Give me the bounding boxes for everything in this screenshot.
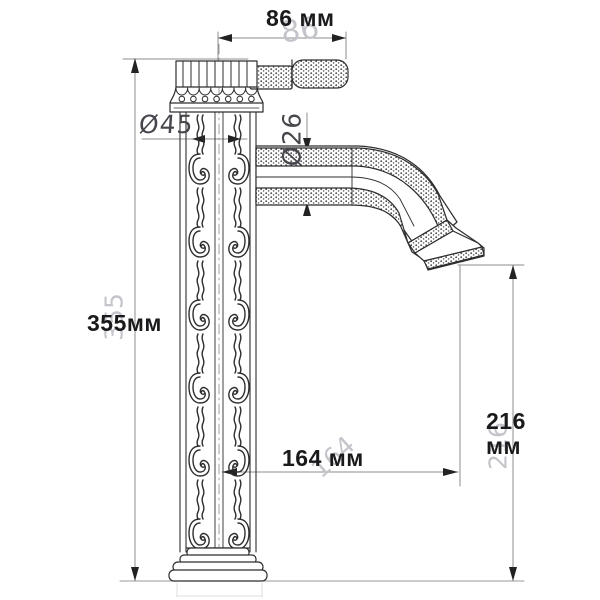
faucet-body xyxy=(169,44,484,597)
dim-width-label: 86 мм xyxy=(266,5,335,32)
handle-lever xyxy=(250,60,348,89)
base xyxy=(169,548,267,581)
crown-cap xyxy=(170,61,263,112)
ornate-column xyxy=(180,112,256,552)
body-diameter-label: Ø45 xyxy=(138,110,195,139)
spout-diameter-label: Ø26 xyxy=(278,111,307,168)
dim-spout-height-value: 216 xyxy=(486,409,526,434)
dim-spout-height-label: 216 мм xyxy=(486,409,526,459)
dim-spout-height-unit: мм xyxy=(486,434,526,459)
dim-reach-label: 164 мм xyxy=(282,445,364,472)
scroll-ornaments-right xyxy=(229,115,249,549)
tailpiece-ghost xyxy=(177,583,262,597)
faucet-drawing xyxy=(0,0,600,600)
scroll-ornaments-left xyxy=(189,115,209,549)
dim-height-label: 355мм xyxy=(87,310,162,337)
drawing-canvas: 86 86 мм Ø45 Ø26 355 355мм 164 164 мм 21… xyxy=(0,0,600,600)
